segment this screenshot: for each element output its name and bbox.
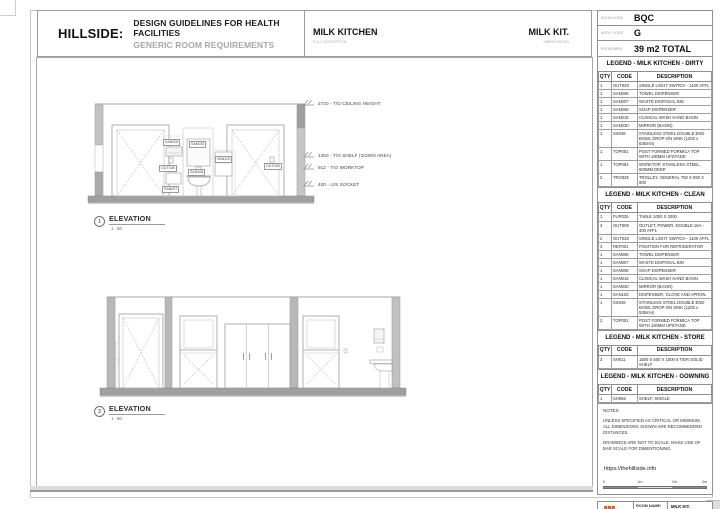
legend-row: 1SAN006TOWEL DISPENSER xyxy=(599,250,712,258)
dimension-callout: 400 - U/S SOCKET xyxy=(303,180,359,187)
legend-cell: 1 xyxy=(599,82,612,90)
elevation-scale: 1 : 50 xyxy=(109,416,165,421)
elevation-number-bubble: 1 xyxy=(94,216,105,227)
legend-cell: TOP001 xyxy=(612,148,638,161)
col-qty: QTY xyxy=(599,72,612,82)
legend-cell: FUR025 xyxy=(612,213,638,221)
legend-row: 1SAN007WASTE DISPOSAL BIN xyxy=(599,98,712,106)
legend-cell: SINGLE LIGHT SWITCH - 1100 AFFL xyxy=(638,234,712,242)
legend-cell: 1 xyxy=(599,274,612,282)
legend-cell: TOP064 xyxy=(612,161,638,174)
dimension-text: 1250 - T/O SHELF (GOWN AREA) xyxy=(318,153,391,158)
viewport-bottom-edge xyxy=(30,486,593,492)
room-abbr-caption: ABBREVIATION xyxy=(543,40,569,44)
legend-cell: SOAP DISPENSER xyxy=(638,266,712,274)
col-code: CODE xyxy=(612,345,638,355)
legend-cell: SS048 xyxy=(612,298,638,316)
legend-cell: SH056 xyxy=(612,395,638,403)
header-title-block: HILLSIDE: DESIGN GUIDELINES FOR HEALTH F… xyxy=(37,10,305,57)
fixture-tag: OUT028 xyxy=(159,165,177,172)
legend-cell: 1 xyxy=(599,148,612,161)
fixture-tag: SAN030 xyxy=(189,141,206,148)
elevation-1-linework xyxy=(88,104,314,203)
legend-cell: 1500 X 500 X 1800 5 TIER SOLID SHELF xyxy=(638,355,712,368)
legend-section-store: LEGEND - MILK KITCHEN - STORE QTY CODE D… xyxy=(597,330,713,370)
legend-title: LEGEND - MILK KITCHEN - STORE xyxy=(598,331,712,345)
legend-cell: TRO025 xyxy=(612,174,638,187)
legend-cell: 3 xyxy=(599,221,612,234)
legend-header-row: QTY CODE DESCRIPTION xyxy=(599,345,712,355)
legend-cell: MIRROR (BASIN) xyxy=(638,122,712,130)
legend-row: 3OUT009OUTLET, POWER, DOUBLE 16A - 400 A… xyxy=(599,221,712,234)
legend-section-clean: LEGEND - MILK KITCHEN - CLEAN QTY CODE D… xyxy=(597,187,713,331)
legend-cell: REF001 xyxy=(612,242,638,250)
col-qty: QTY xyxy=(599,385,612,395)
legend-row: 1SAN030MIRROR (BASIN) xyxy=(599,122,712,130)
legend-cell: OUT009 xyxy=(612,221,638,234)
legend-row: 1SS048STAINLESS STEEL DOUBLE END BOWL DR… xyxy=(599,298,712,316)
room-full-name: MILK KITCHEN xyxy=(313,27,378,37)
legend-cell: TOWEL DISPENSER xyxy=(638,90,712,98)
dimension-text: 400 - U/S SOCKET xyxy=(318,182,359,187)
legend-cell: POST FORMED FORMICA TOP WITH 100MM UPSTA… xyxy=(638,148,712,161)
legend-table: QTY CODE DESCRIPTION 1FUR025TABLE 1000 X… xyxy=(598,202,712,330)
bar-scale-segments xyxy=(603,486,707,490)
dimension-text: 2720 - T/O CEILING HEIGHT xyxy=(318,101,381,106)
legend-cell: CLINICAL WASH HAND BASIN xyxy=(638,114,712,122)
legend-cell: 2 xyxy=(599,234,612,242)
right-panel: ROOM CODE BQC ARCH. CODE G ROOM AREA 39 … xyxy=(597,10,713,509)
title-block-rows: ROOM NAME: MILK KIT. CUSTODIAN: NDoH DRA… xyxy=(634,502,712,509)
legend-table: QTY CODE DESCRIPTION 3SH0111500 X 500 X … xyxy=(598,345,712,369)
legend-header-row: QTY CODE DESCRIPTION xyxy=(599,385,712,395)
room-abbreviation: MILK KIT. xyxy=(529,27,570,37)
legend-row: 1SAN015CLINICAL WASH HAND BASIN xyxy=(599,274,712,282)
scale-segment xyxy=(604,487,638,489)
elevation-title-text: ELEVATION 1 : 50 xyxy=(109,404,165,421)
legend-cell: WORKTOP, STAINLESS STEEL, 600MM DEEP. xyxy=(638,161,712,174)
legend-section-dirty: LEGEND - MILK KITCHEN - DIRTY QTY CODE D… xyxy=(597,56,713,188)
legend-cell: STAINLESS STEEL DOUBLE END BOWL DROP-ON … xyxy=(638,298,712,316)
scale-segment xyxy=(638,487,672,489)
note-line: UNLESS SPECIFIED AS CRITICAL OR MINIMUM,… xyxy=(603,418,707,435)
legend-row: 2OUT028SINGLE LIGHT SWITCH - 1100 AFFL xyxy=(599,234,712,242)
legend-cell: 1 xyxy=(599,106,612,114)
legend-cell: SAN030 xyxy=(612,282,638,290)
room-code-label: ROOM CODE xyxy=(598,16,634,20)
legend-cell: SOAP DISPENSER xyxy=(638,106,712,114)
legend-cell: 2 xyxy=(599,174,612,187)
legend-cell: 1 xyxy=(599,114,612,122)
legend-header-row: QTY CODE DESCRIPTION xyxy=(599,203,712,213)
arch-code-label: ARCH. CODE xyxy=(598,31,634,35)
legend-cell: 1 xyxy=(599,130,612,148)
legend-cell: SS048 xyxy=(612,130,638,148)
col-description: DESCRIPTION xyxy=(638,203,712,213)
datum-icon xyxy=(303,163,315,170)
legend-cell: 1 xyxy=(599,395,612,403)
header-titles: DESIGN GUIDELINES FOR HEALTH FACILITIES … xyxy=(133,18,304,50)
legend-row: 1SH056SHELF, SINGLE xyxy=(599,395,712,403)
document-title: DESIGN GUIDELINES FOR HEALTH FACILITIES xyxy=(133,18,304,38)
legend-row: 1SAN008SOAP DISPENSER xyxy=(599,106,712,114)
elevation-number-bubble: 3 xyxy=(94,406,105,417)
legend-row: 1OUT028SINGLE LIGHT SWITCH - 1100 AFFL xyxy=(599,82,712,90)
hillside-logo: HILL SIDE xyxy=(598,502,634,509)
scale-tick-label: 2m xyxy=(672,480,677,484)
legend-cell: 1 xyxy=(599,161,612,174)
field-value: MILK KIT. xyxy=(668,502,690,509)
legend-row: 1SAN008SOAP DISPENSER xyxy=(599,266,712,274)
col-code: CODE xyxy=(612,72,638,82)
legend-table: QTY CODE DESCRIPTION 1OUT028SINGLE LIGHT… xyxy=(598,71,712,187)
legend-title: LEGEND - MILK KITCHEN - CLEAN xyxy=(598,188,712,202)
legend-cell: 1 xyxy=(599,250,612,258)
col-code: CODE xyxy=(612,203,638,213)
drawing-sheet: HILLSIDE: DESIGN GUIDELINES FOR HEALTH F… xyxy=(0,0,720,509)
hillside-wordmark: HILLSIDE: xyxy=(38,26,133,41)
title-block: HILL SIDE ROOM NAME: MILK KIT. CUSTODIAN… xyxy=(597,501,713,509)
bar-scale-labels: 0 1m 2m 3m xyxy=(603,480,707,486)
legend-cell: 1 xyxy=(599,122,612,130)
col-qty: QTY xyxy=(599,345,612,355)
dimension-callout: 912 - T/O WORKTOP xyxy=(303,163,364,170)
dimension-callout: 1250 - T/O SHELF (GOWN AREA) xyxy=(303,151,391,158)
corner-trim-mark xyxy=(0,0,16,16)
legend-cell: TOP001 xyxy=(612,316,638,329)
legend-cell: TOWEL DISPENSER xyxy=(638,250,712,258)
elevation-title-text: ELEVATION 1 : 50 xyxy=(109,214,165,231)
legend-cell: SAN006 xyxy=(612,90,638,98)
scale-tick-label: 1m xyxy=(637,480,642,484)
legend-cell: SAN008 xyxy=(612,266,638,274)
scale-segment xyxy=(672,487,706,489)
legend-cell: SHELF, SINGLE xyxy=(638,395,712,403)
datum-icon xyxy=(303,151,315,158)
legend-cell: 2 xyxy=(599,316,612,329)
col-description: DESCRIPTION xyxy=(638,345,712,355)
legend-row: 1FUR025TABLE 1000 X 2000 xyxy=(599,213,712,221)
website-link[interactable]: https://thehillside.info xyxy=(604,466,656,472)
legend-title: LEGEND - MILK KITCHEN - GOWNING xyxy=(598,370,712,384)
arch-code-row: ARCH. CODE G xyxy=(598,26,712,41)
legend-cell: 1 xyxy=(599,298,612,316)
legend-cell: SAN008 xyxy=(612,106,638,114)
legend-cell: 3 xyxy=(599,242,612,250)
datum-icon xyxy=(303,180,315,187)
legend-cell: SAN007 xyxy=(612,258,638,266)
legend-cell: SAN006 xyxy=(612,250,638,258)
col-code: CODE xyxy=(612,385,638,395)
datum-icon xyxy=(303,99,315,106)
legend-cell: SAN102 xyxy=(612,290,638,298)
legend-cell: CLINICAL WASH HAND BASIN xyxy=(638,274,712,282)
legend-cell: OUT028 xyxy=(612,234,638,242)
field-label: ROOM NAME: xyxy=(634,502,668,509)
legend-row: 2TOP001POST FORMED FORMICA TOP WITH 100M… xyxy=(599,316,712,329)
title-block-row: ROOM NAME: MILK KIT. xyxy=(634,502,712,509)
dimension-callout: 2720 - T/O CEILING HEIGHT xyxy=(303,99,381,106)
legend-cell: MIRROR (BASIN) xyxy=(638,282,712,290)
scale-tick-label: 0 xyxy=(603,480,605,484)
legend-row: 2TRO025TROLLEY, GENERAL 750 X 550 X 900 xyxy=(599,174,712,187)
legend-cell: 1 xyxy=(599,266,612,274)
fixture-tag: SAN102 xyxy=(215,156,232,163)
room-full-caption: FULL DESCRIPTION xyxy=(313,40,346,44)
arch-code-value: G xyxy=(634,28,641,38)
note-line: DRAWINGS ARE NOT TO SCALE, MAKE USE OF B… xyxy=(603,440,707,452)
legend-row: 1SAN006TOWEL DISPENSER xyxy=(599,90,712,98)
legend-row: 3SH0111500 X 500 X 1800 5 TIER SOLID SHE… xyxy=(599,355,712,368)
legend-cell: POST FORMED FORMICA TOP WITH 100MM UPSTA… xyxy=(638,316,712,329)
legend-cell: 1 xyxy=(599,98,612,106)
fixture-tag: SAN008 xyxy=(188,169,205,176)
legend-row: 1TOP001POST FORMED FORMICA TOP WITH 100M… xyxy=(599,148,712,161)
legend-cell: POSITION FOR REFRIGERATOR xyxy=(638,242,712,250)
legend-cell: 1 xyxy=(599,90,612,98)
legend-row: 3REF001POSITION FOR REFRIGERATOR xyxy=(599,242,712,250)
room-code-value: BQC xyxy=(634,13,654,23)
legend-cell: DISPENSER, GLOVE AND APRON. xyxy=(638,290,712,298)
legend-row: 1SAN030MIRROR (BASIN) xyxy=(599,282,712,290)
col-description: DESCRIPTION xyxy=(638,72,712,82)
bar-scale: 0 1m 2m 3m xyxy=(603,480,707,489)
legend-cell: 1 xyxy=(599,290,612,298)
legend-table: QTY CODE DESCRIPTION 1SH056SHELF, SINGLE xyxy=(598,384,712,403)
legend-row: 1SS048STAINLESS STEEL DOUBLE END BOWL DR… xyxy=(599,130,712,148)
legend-cell: STAINLESS STEEL DOUBLE END BOWL DROP-ON … xyxy=(638,130,712,148)
legend-row: 1SAN102DISPENSER, GLOVE AND APRON. xyxy=(599,290,712,298)
legend-cell: SAN015 xyxy=(612,274,638,282)
fixture-tag: OUT028 xyxy=(264,163,282,170)
col-qty: QTY xyxy=(599,203,612,213)
dimension-text: 912 - T/O WORKTOP xyxy=(318,165,364,170)
legend-cell: SAN007 xyxy=(612,98,638,106)
legend-cell: OUT028 xyxy=(612,82,638,90)
legend-cell: SAN030 xyxy=(612,122,638,130)
fixture-tag: SAN007 xyxy=(162,186,179,193)
scale-tick-label: 3m xyxy=(702,480,707,484)
legend-title: LEGEND - MILK KITCHEN - DIRTY xyxy=(598,57,712,71)
legend-cell: 1 xyxy=(599,282,612,290)
legend-cell: TROLLEY, GENERAL 750 X 550 X 900 xyxy=(638,174,712,187)
legend-header-row: QTY CODE DESCRIPTION xyxy=(599,72,712,82)
legend-cell: SINGLE LIGHT SWITCH - 1100 AFFL xyxy=(638,82,712,90)
notes-block: NOTES: UNLESS SPECIFIED AS CRITICAL OR M… xyxy=(597,403,713,495)
room-area-value: 39 m2 TOTAL xyxy=(634,44,691,54)
legend-cell: SH011 xyxy=(612,355,638,368)
legend-cell: 1 xyxy=(599,213,612,221)
legend-cell: TABLE 1000 X 2000 xyxy=(638,213,712,221)
legend-cell: 1 xyxy=(599,258,612,266)
legend-cell: WASTE DISPOSAL BIN xyxy=(638,258,712,266)
fixture-tag: SAN006 xyxy=(163,139,180,146)
elevation-label: ELEVATION xyxy=(109,404,165,415)
room-codes-block: ROOM CODE BQC ARCH. CODE G ROOM AREA 39 … xyxy=(597,10,713,57)
elevation-1-title: 1 ELEVATION 1 : 50 xyxy=(94,214,165,231)
notes-title: NOTES: xyxy=(603,408,707,413)
document-subtitle: GENERIC ROOM REQUIREMENTS xyxy=(133,40,304,50)
room-name-block: MILK KITCHEN FULL DESCRIPTION MILK KIT. … xyxy=(304,10,592,57)
legend-row: 1SAN007WASTE DISPOSAL BIN xyxy=(599,258,712,266)
elevation-drawings xyxy=(37,58,592,486)
elevation-label: ELEVATION xyxy=(109,214,165,225)
room-area-row: ROOM AREA 39 m2 TOTAL xyxy=(598,41,712,56)
elevation-3-linework xyxy=(100,297,406,396)
elevation-3-title: 3 ELEVATION 1 : 50 xyxy=(94,404,165,421)
room-code-row: ROOM CODE BQC xyxy=(598,11,712,26)
legend-row: 1TOP064WORKTOP, STAINLESS STEEL, 600MM D… xyxy=(599,161,712,174)
col-description: DESCRIPTION xyxy=(638,385,712,395)
legend-cell: WASTE DISPOSAL BIN xyxy=(638,98,712,106)
legend-cell: OUTLET, POWER, DOUBLE 16A - 400 AFFL xyxy=(638,221,712,234)
legend-cell: SAN015 xyxy=(612,114,638,122)
legend-section-gowning: LEGEND - MILK KITCHEN - GOWNING QTY CODE… xyxy=(597,369,713,404)
elevation-scale: 1 : 50 xyxy=(109,226,165,231)
legend-row: 1SAN015CLINICAL WASH HAND BASIN xyxy=(599,114,712,122)
legend-cell: 3 xyxy=(599,355,612,368)
room-area-label: ROOM AREA xyxy=(598,47,634,51)
